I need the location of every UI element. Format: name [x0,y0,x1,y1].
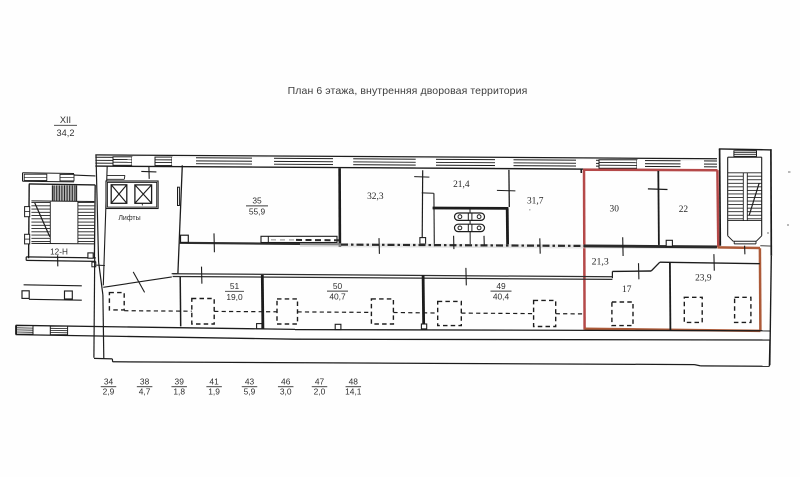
svg-text:34: 34 [104,376,114,386]
svg-text:17: 17 [622,285,632,295]
svg-text:31,7: 31,7 [527,196,544,206]
svg-text:3,0: 3,0 [280,387,292,397]
svg-text:49: 49 [496,281,506,291]
svg-text:43: 43 [245,376,255,386]
svg-text:1,9: 1,9 [208,387,220,397]
svg-text:14,1: 14,1 [345,387,362,397]
svg-text:21,3: 21,3 [592,256,609,267]
svg-text:Лифты: Лифты [118,215,140,222]
svg-text:План 6 этажа, внутренняя дворо: План 6 этажа, внутренняя дворовая террит… [288,85,528,97]
svg-text:19,0: 19,0 [226,292,243,302]
svg-text:50: 50 [333,281,343,291]
svg-text:30: 30 [610,204,620,214]
svg-text:12-Н: 12-Н [50,247,68,256]
svg-text:34,2: 34,2 [57,128,75,138]
svg-text:23,9: 23,9 [695,274,712,284]
svg-text:XII: XII [60,115,71,125]
svg-text:2,9: 2,9 [103,387,115,397]
svg-text:5,9: 5,9 [244,387,256,397]
svg-text:39: 39 [175,376,185,386]
svg-text:55,9: 55,9 [249,206,266,216]
svg-text:41: 41 [209,376,219,386]
svg-text:38: 38 [140,376,150,386]
svg-text:51: 51 [230,281,240,291]
svg-text:21,4: 21,4 [453,180,470,190]
svg-text:4,7: 4,7 [139,387,151,397]
svg-text:48: 48 [349,376,359,386]
svg-text:40,7: 40,7 [329,292,346,302]
svg-text:46: 46 [281,376,291,386]
svg-text:2,0: 2,0 [314,387,326,397]
svg-text:32,3: 32,3 [367,192,384,202]
svg-text:40,4: 40,4 [493,292,510,302]
svg-text:47: 47 [315,376,325,386]
svg-text:22: 22 [679,205,689,215]
svg-text:35: 35 [252,196,262,206]
svg-text:1,8: 1,8 [173,387,185,397]
